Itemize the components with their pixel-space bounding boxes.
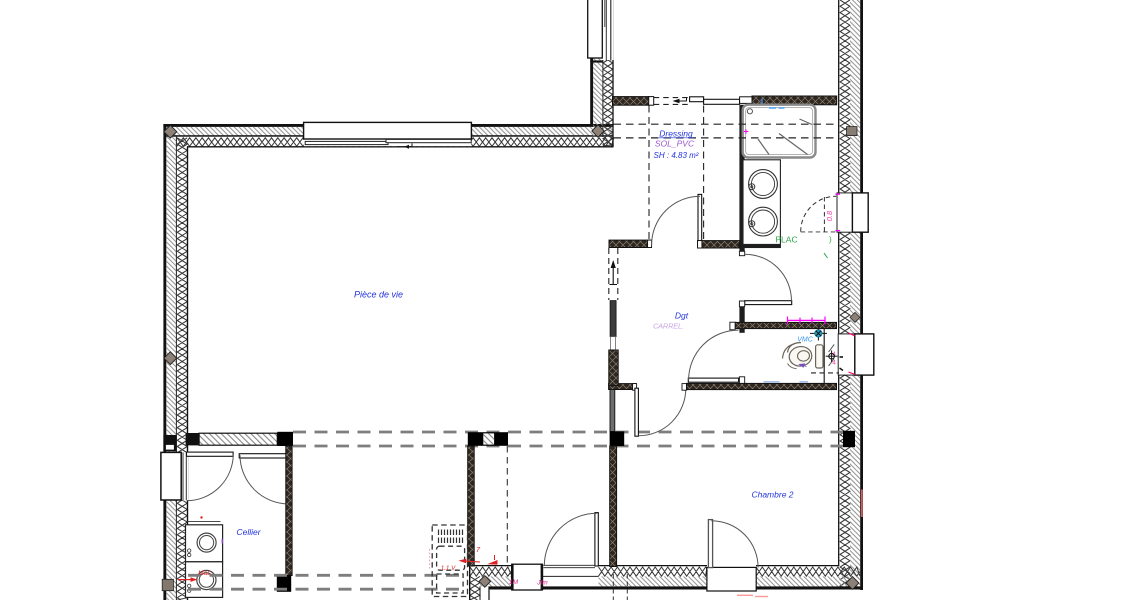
svg-text:PLAC: PLAC	[775, 235, 797, 245]
svg-text:Chambre 2: Chambre 2	[751, 490, 793, 500]
svg-text:Cellier: Cellier	[236, 527, 261, 537]
svg-text:SH : 4.83 m²: SH : 4.83 m²	[654, 151, 699, 160]
svg-text:0.8: 0.8	[825, 210, 834, 221]
svg-text:1M: 1M	[509, 579, 519, 586]
svg-text:Jfm: Jfm	[536, 580, 548, 587]
svg-text:1.1 V: 1.1 V	[441, 565, 456, 572]
svg-text:Pièce de vie: Pièce de vie	[354, 290, 403, 300]
svg-text:SOL_PVC: SOL_PVC	[655, 138, 695, 148]
svg-text:Dgt: Dgt	[675, 311, 689, 321]
svg-text:Dressing: Dressing	[659, 129, 693, 139]
svg-text:MàL: MàL	[198, 570, 211, 577]
svg-text:): )	[829, 235, 832, 244]
svg-text:4: 4	[832, 360, 836, 367]
svg-text:VMC: VMC	[797, 337, 814, 344]
svg-text:CARREL.: CARREL.	[653, 322, 684, 331]
